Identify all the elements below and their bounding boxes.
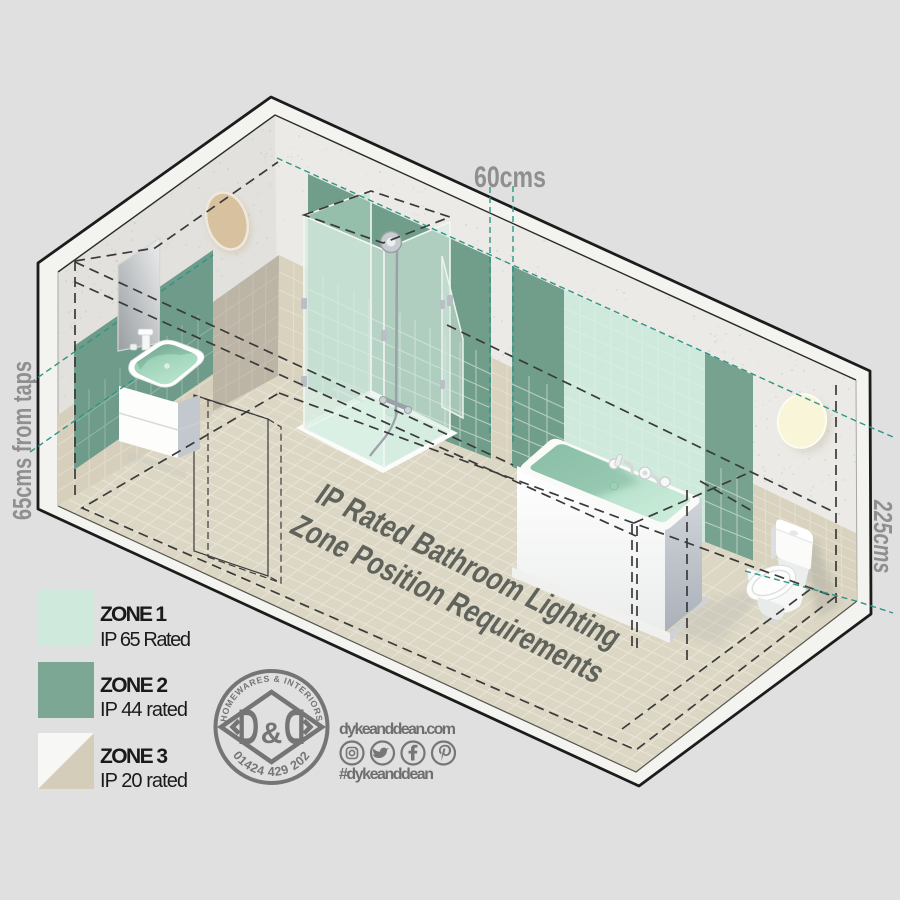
svg-text:IP 65 Rated: IP 65 Rated [100, 629, 191, 651]
svg-text:65cms from taps: 65cms from taps [7, 361, 36, 520]
svg-text:&: & [261, 717, 283, 750]
svg-text:IP 20 rated: IP 20 rated [100, 770, 188, 792]
svg-text:D: D [238, 699, 260, 755]
svg-text:IP 44 rated: IP 44 rated [100, 699, 188, 721]
svg-text:ZONE 1: ZONE 1 [100, 603, 167, 626]
svg-text:225cms: 225cms [868, 499, 897, 573]
svg-text:D: D [284, 699, 306, 755]
svg-text:60cms: 60cms [474, 160, 546, 194]
svg-text:ZONE 2: ZONE 2 [100, 674, 168, 697]
svg-text:ZONE 3: ZONE 3 [100, 745, 168, 768]
svg-text:dykeanddean.com: dykeanddean.com [339, 721, 456, 738]
svg-text:#dykeanddean: #dykeanddean [339, 766, 434, 783]
